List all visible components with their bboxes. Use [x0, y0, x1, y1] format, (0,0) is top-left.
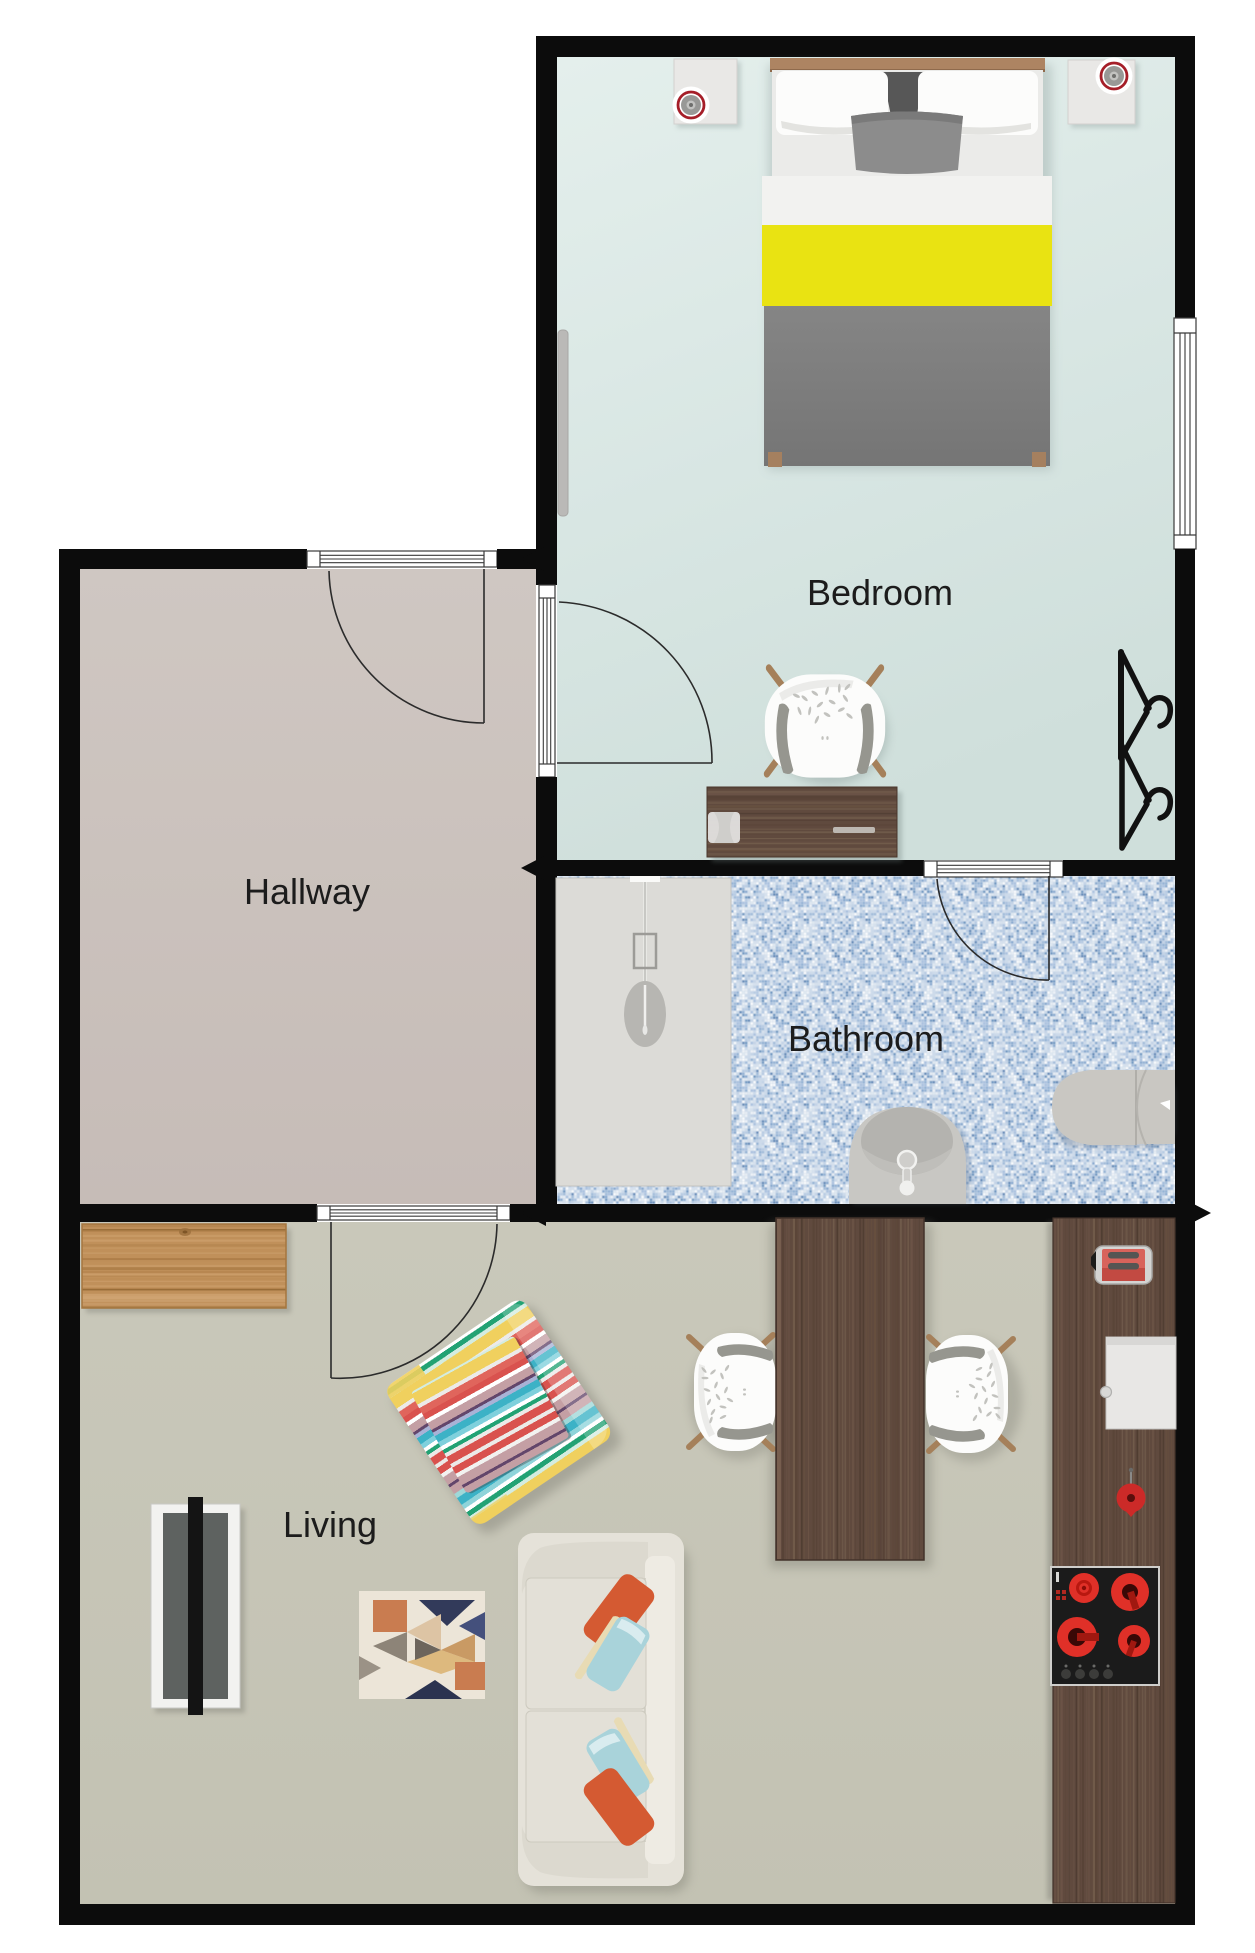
- svg-text:Hallway: Hallway: [244, 871, 370, 912]
- svg-text:Bedroom: Bedroom: [807, 572, 953, 613]
- svg-text:Living: Living: [283, 1504, 377, 1545]
- svg-text:Bathroom: Bathroom: [788, 1018, 944, 1059]
